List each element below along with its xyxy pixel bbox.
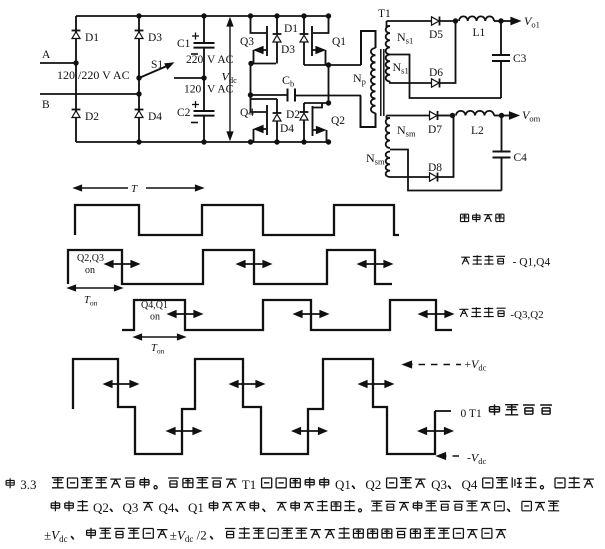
- svg-text:D2: D2: [286, 109, 300, 121]
- svg-text:- Q1,Q4: - Q1,Q4: [507, 257, 551, 269]
- svg-text:Q3: Q3: [428, 477, 447, 492]
- svg-text:T1: T1: [378, 8, 391, 20]
- svg-text:C3: C3: [513, 53, 527, 65]
- svg-text:D7: D7: [428, 124, 442, 136]
- svg-text:Q1: Q1: [332, 477, 351, 492]
- svg-text:on: on: [150, 312, 160, 323]
- svg-text:Q1: Q1: [188, 500, 207, 515]
- svg-text:D3: D3: [281, 44, 295, 56]
- svg-text:Q3: Q3: [123, 500, 142, 515]
- svg-text:C2: C2: [177, 107, 191, 119]
- svg-text:Q1: Q1: [332, 36, 346, 48]
- svg-text:Q4: Q4: [240, 107, 254, 119]
- svg-text:Q2: Q2: [365, 477, 384, 492]
- svg-text:C1: C1: [177, 38, 191, 50]
- svg-text:B: B: [42, 99, 50, 111]
- svg-text:S1: S1: [151, 59, 163, 71]
- svg-text:Q2: Q2: [331, 115, 345, 127]
- svg-text:L1: L1: [473, 27, 486, 39]
- svg-text:T1: T1: [239, 477, 260, 492]
- svg-text:T: T: [131, 183, 138, 195]
- svg-text:C4: C4: [514, 152, 528, 164]
- svg-text:D4: D4: [148, 111, 162, 123]
- svg-text:Q2: Q2: [90, 500, 109, 515]
- svg-text:0 T1: 0 T1: [461, 408, 482, 420]
- svg-text:Q3: Q3: [240, 36, 254, 48]
- svg-text:Q4: Q4: [155, 500, 175, 515]
- svg-text:Q4: Q4: [462, 477, 481, 492]
- svg-text:D4: D4: [280, 123, 294, 135]
- svg-text:120 /220 V AC: 120 /220 V AC: [57, 68, 130, 82]
- svg-text:Q2,Q3: Q2,Q3: [77, 253, 104, 264]
- svg-text:120: 120: [184, 84, 202, 96]
- svg-text:220: 220: [186, 54, 204, 66]
- svg-text:D6: D6: [429, 67, 443, 79]
- svg-text:D5: D5: [429, 29, 443, 41]
- svg-text:D3: D3: [148, 32, 162, 44]
- svg-text:on: on: [85, 265, 95, 276]
- svg-text:D1: D1: [284, 23, 298, 35]
- svg-text:D2: D2: [85, 111, 99, 123]
- svg-text:Q4,Q1: Q4,Q1: [141, 300, 168, 311]
- svg-text:L2: L2: [471, 125, 484, 137]
- svg-text:-Q3,Q2: -Q3,Q2: [508, 309, 544, 321]
- svg-text:D8: D8: [428, 162, 442, 174]
- svg-text:D1: D1: [85, 32, 99, 44]
- svg-text:3.3: 3.3: [17, 477, 37, 492]
- svg-text:A: A: [42, 49, 51, 61]
